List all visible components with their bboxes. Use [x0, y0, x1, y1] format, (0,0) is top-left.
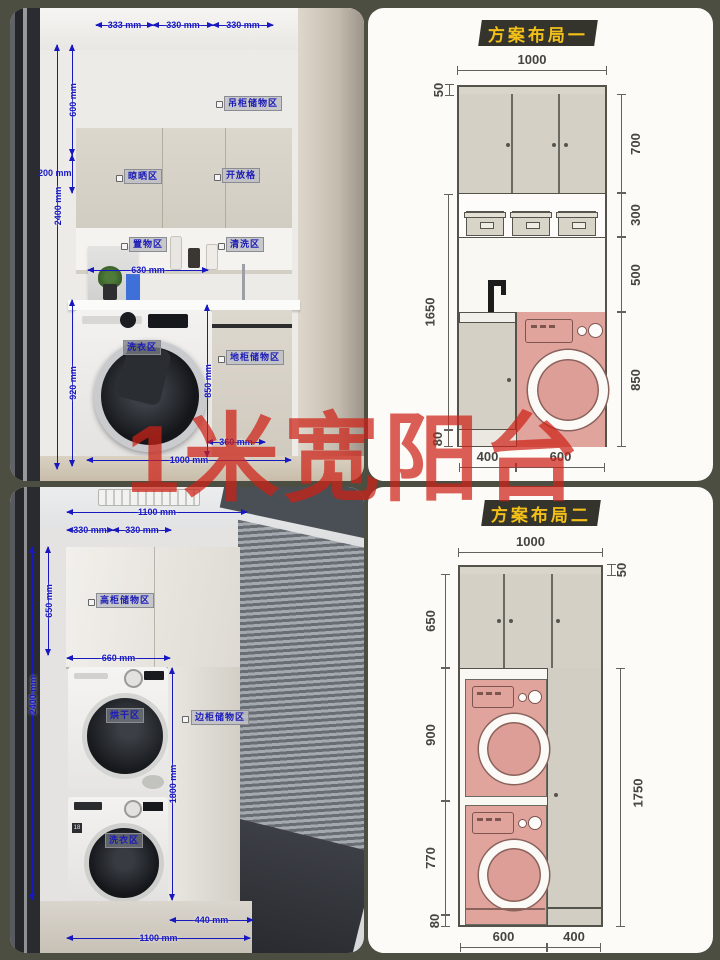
d1-storage-box — [512, 211, 550, 236]
d2-wall-cabinet — [460, 574, 601, 669]
label-open-shelf: 开放格 — [222, 168, 260, 183]
tall-cabinet-seam — [154, 547, 155, 667]
d2-dim-600: 600 — [460, 947, 547, 948]
d1-dim-850: 850 — [621, 312, 622, 447]
dryer-dial — [124, 669, 143, 688]
dim-washer-width: 630 mm — [88, 266, 208, 275]
d2-washer — [465, 805, 547, 925]
d1-faucet-tip — [501, 286, 506, 295]
label-marker — [218, 243, 225, 250]
d2-dim-770: 770 — [445, 801, 446, 915]
window-frame-left — [10, 8, 40, 481]
dim-cabinet-height: 600 mm — [68, 45, 77, 155]
diagram1-title: 方案布局一 — [478, 20, 598, 46]
d2-washer-drum — [479, 840, 549, 910]
d2-dim-650: 650 — [445, 574, 446, 668]
d1-wall-cabinet — [459, 94, 605, 194]
d2-door-knob — [497, 619, 501, 623]
d1-storage-box — [558, 211, 596, 236]
d2-dim-1000: 1000 — [458, 552, 603, 553]
dim-width-3: 330 mm — [213, 21, 273, 30]
d2-washer-knob — [518, 819, 527, 828]
d2-washer-knob — [528, 816, 542, 830]
shelf-jar — [188, 248, 200, 268]
p2-dim-330a: 330 mm — [67, 526, 113, 535]
p2-dim-1100-bottom: 1100 mm — [67, 934, 250, 943]
d1-washer-knob — [588, 323, 603, 338]
d2-door-seam — [551, 574, 553, 668]
floor-2 — [40, 901, 252, 953]
label-marker — [214, 174, 221, 181]
d1-dim-700: 700 — [621, 94, 622, 193]
d1-storage-box — [466, 211, 504, 236]
label-laundry-zone-2: 洗衣区 — [105, 833, 143, 848]
label-washing-zone: 清洗区 — [226, 237, 264, 252]
d1-dim-1650: 1650 — [448, 194, 449, 430]
d2-side-door-knob — [554, 793, 558, 797]
washer2-dispenser — [74, 802, 102, 810]
dryer-filter — [142, 775, 164, 789]
d2-dryer — [465, 679, 547, 797]
d2-dim-1750: 1750 — [620, 668, 621, 927]
label-laundry-zone: 洗衣区 — [123, 340, 161, 355]
d1-washer-knob — [577, 326, 587, 336]
d2-washer-panel — [472, 812, 514, 834]
p2-dim-330b: 330 mm — [113, 526, 171, 535]
label-dryer-zone: 烘干区 — [106, 708, 144, 723]
washer2-display — [143, 802, 163, 811]
dim-width-1: 333 mm — [96, 21, 153, 30]
washer-dial — [120, 312, 136, 328]
d1-door-knob — [506, 143, 510, 147]
label-marker — [121, 243, 128, 250]
d1-sink-door-knob — [507, 378, 511, 382]
p2-dim-650: 650 mm — [44, 547, 53, 655]
dim-shelf-height-text: 200 mm — [38, 168, 72, 178]
label-base-cabinet: 地柜储物区 — [226, 350, 284, 365]
d1-dim-50: 50 — [449, 84, 450, 96]
washer-photo-2: 18 — [68, 797, 168, 901]
label-drying-zone: 晾晒区 — [124, 169, 162, 184]
d2-dim-900: 900 — [445, 668, 446, 801]
shelf-bottle — [170, 236, 182, 270]
p2-dim-660: 660 mm — [67, 654, 170, 663]
counter — [68, 300, 300, 310]
faucet — [242, 264, 245, 300]
photo-layout-2: 18 1100 mm 330 mm 330 mm 650 mm 2400 mm … — [10, 487, 364, 953]
side-cabinet-column — [168, 667, 240, 907]
cabinet-door-seam — [162, 128, 163, 228]
label-marker — [182, 716, 189, 723]
watermark-text: 1米宽阳台 — [126, 412, 583, 508]
dryer-photo — [68, 667, 168, 791]
d1-door-knob — [564, 143, 568, 147]
label-marker — [216, 101, 223, 108]
label-marker — [116, 175, 123, 182]
d1-dim-300: 300 — [621, 193, 622, 237]
label-hanging-storage: 吊柜储物区 — [224, 96, 282, 111]
washer2-dial — [124, 800, 142, 818]
d2-door-seam — [503, 574, 505, 668]
d2-dryer-drum — [479, 714, 549, 784]
label-tall-storage: 高柜储物区 — [96, 593, 154, 608]
d1-washer-panel — [525, 319, 573, 343]
plant-pot — [103, 284, 117, 300]
washer2-badge: 18 — [72, 823, 82, 833]
label-storage-zone: 置物区 — [129, 237, 167, 252]
d2-door-knob — [556, 619, 560, 623]
dryer-display — [144, 671, 164, 680]
label-marker — [88, 599, 95, 606]
dim-width-2: 330 mm — [153, 21, 213, 30]
d1-dim-500: 500 — [621, 237, 622, 312]
dim-total-height: 2400 mm — [53, 45, 62, 469]
label-marker — [218, 356, 225, 363]
d2-dryer-knob — [528, 690, 542, 704]
d1-dim-1000: 1000 — [457, 70, 607, 71]
d1-door-seam — [558, 94, 560, 193]
dryer-door — [82, 693, 168, 779]
d1-door-seam — [511, 94, 513, 193]
p2-dim-440: 440 mm — [170, 916, 253, 925]
d1-sink-counter — [459, 312, 516, 323]
d2-side-cabinet-seam — [547, 907, 601, 909]
d2-dim-400: 400 — [547, 947, 601, 948]
tall-cabinet-upper — [66, 547, 240, 669]
d2-dim-80: 80 — [445, 915, 446, 927]
p2-dim-1800: 1800 mm — [168, 668, 177, 900]
d2-door-knob — [509, 619, 513, 623]
label-side-storage: 边柜储物区 — [191, 710, 249, 725]
d1-door-knob — [552, 143, 556, 147]
detergent-bottle — [126, 270, 140, 304]
d2-dim-50: 50 — [611, 564, 612, 576]
p2-dim-2400: 2400 mm — [28, 547, 37, 900]
diagram-layout-2: 方案布局二 1000 50 650 900 770 80 1750 600 40… — [368, 487, 713, 953]
d2-dryer-knob — [518, 693, 527, 702]
dim-washer-height: 920 mm — [68, 300, 77, 466]
d2-dryer-panel — [472, 686, 514, 708]
washer-display — [148, 314, 188, 328]
canvas: { "watermark": { "text": "1米宽阳台", "color… — [0, 0, 720, 960]
